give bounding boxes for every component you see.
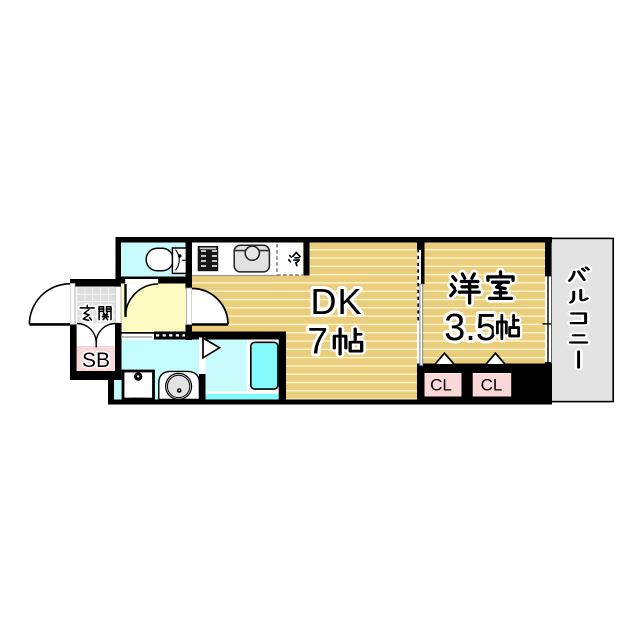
svg-text:CL: CL [430,376,452,395]
svg-text:CL: CL [481,376,503,395]
svg-text:7: 7 [307,321,328,362]
svg-text:3.5: 3.5 [444,307,497,349]
svg-text:DK: DK [310,281,362,322]
svg-text:SB: SB [82,349,110,372]
